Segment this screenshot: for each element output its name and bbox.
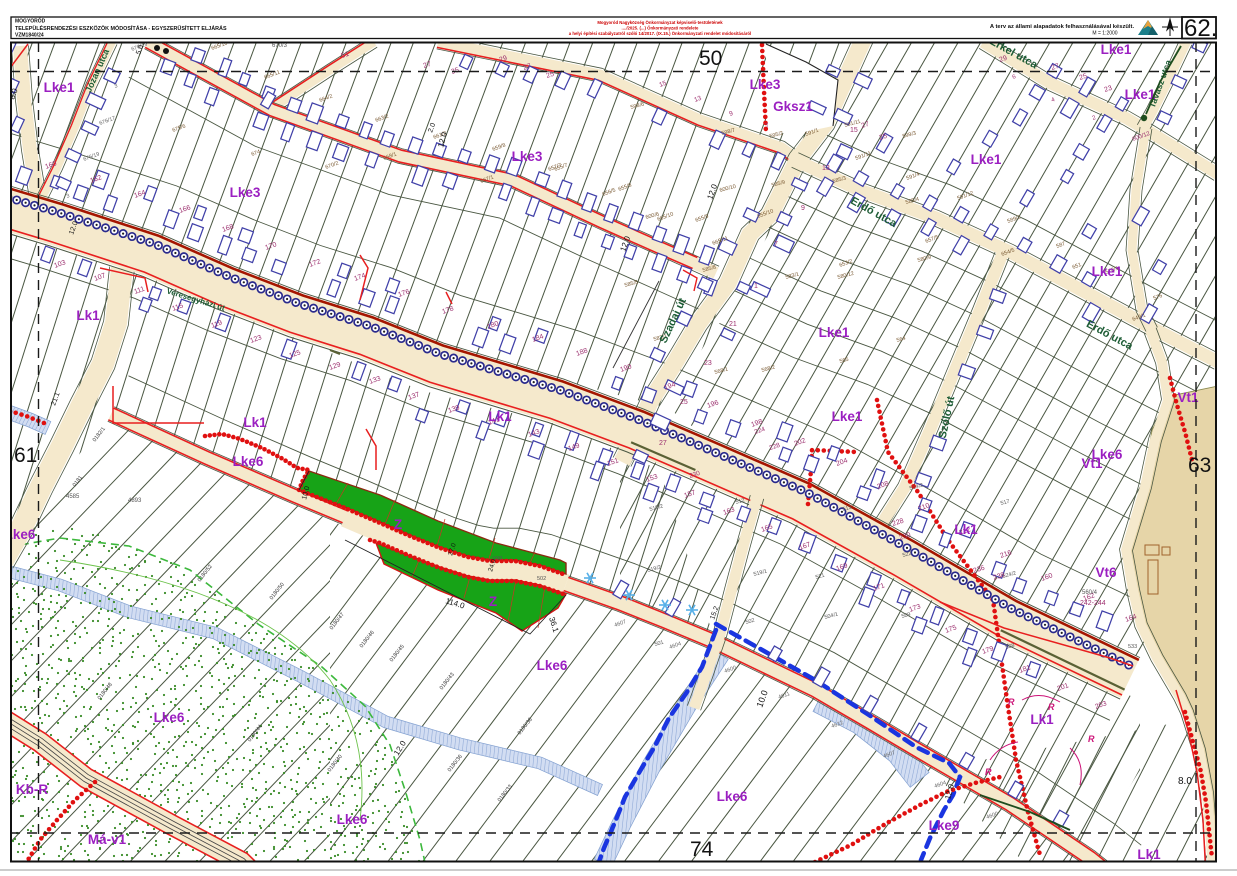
- svg-text:Lke6: Lke6: [537, 658, 568, 673]
- svg-text:61: 61: [14, 444, 37, 467]
- svg-text:..../2025. (...) Önkormányzati: ..../2025. (...) Önkormányzati rendelete: [622, 26, 700, 31]
- svg-text:Lk1: Lk1: [76, 308, 100, 323]
- svg-text:4585: 4585: [66, 494, 80, 500]
- svg-text:Lke1: Lke1: [1092, 264, 1123, 279]
- svg-text:Lke3: Lke3: [230, 185, 261, 200]
- svg-text:Lke1: Lke1: [971, 152, 1002, 167]
- svg-text:Lke1: Lke1: [819, 325, 850, 340]
- svg-text:TELEPÜLÉSRENDEZÉSI ESZKÖZÖK MÓ: TELEPÜLÉSRENDEZÉSI ESZKÖZÖK MÓDOSÍTÁSA -…: [15, 24, 227, 32]
- svg-text:27: 27: [659, 440, 667, 447]
- svg-text:9: 9: [801, 205, 805, 212]
- svg-text:Vt6: Vt6: [1095, 565, 1117, 580]
- svg-text:4893: 4893: [128, 498, 142, 504]
- svg-text:63: 63: [1188, 454, 1211, 477]
- svg-text:7: 7: [774, 241, 778, 248]
- svg-text:Mogyoród Nagyközség Önkormányz: Mogyoród Nagyközség Önkormányzat képvise…: [597, 20, 723, 25]
- svg-text:Lk1: Lk1: [243, 415, 267, 430]
- svg-text:15: 15: [850, 127, 858, 134]
- svg-text:25: 25: [680, 399, 688, 406]
- svg-text:A terv az állami alapadatok fe: A terv az állami alapadatok felhasználás…: [990, 24, 1135, 30]
- svg-text:R: R: [1008, 697, 1015, 707]
- svg-text:a helyi építési szabályzatról: a helyi építési szabályzatról szóló 14/2…: [569, 31, 751, 36]
- svg-text:Lk1: Lk1: [1030, 712, 1054, 727]
- svg-text:MOGYORÓD: MOGYORÓD: [15, 17, 46, 25]
- svg-text:1: 1: [754, 283, 758, 290]
- svg-text:533: 533: [1128, 644, 1137, 650]
- svg-text:242-244: 242-244: [1080, 600, 1106, 607]
- svg-text:Lke1: Lke1: [44, 80, 75, 95]
- svg-text:Lke6: Lke6: [1092, 447, 1123, 462]
- svg-text:74: 74: [690, 838, 714, 861]
- svg-text:Z: Z: [489, 594, 497, 609]
- svg-text:23: 23: [704, 360, 712, 367]
- svg-text:8.0: 8.0: [1178, 776, 1192, 787]
- svg-text:13: 13: [822, 165, 830, 172]
- svg-text:R: R: [985, 767, 992, 777]
- svg-text:670/3: 670/3: [272, 43, 288, 49]
- svg-text:Lke6: Lke6: [717, 789, 748, 804]
- svg-text:Lke1: Lke1: [1125, 87, 1156, 102]
- svg-text:Z: Z: [394, 517, 402, 532]
- svg-text:Lke6: Lke6: [154, 710, 185, 725]
- svg-text:Kb-R: Kb-R: [16, 782, 48, 797]
- svg-text:Lk1: Lk1: [488, 409, 512, 424]
- svg-text:502: 502: [537, 576, 546, 582]
- svg-text:560/4: 560/4: [1082, 590, 1098, 596]
- svg-text:R: R: [1048, 702, 1055, 712]
- svg-text:21: 21: [729, 321, 737, 328]
- svg-text:62.: 62.: [1184, 15, 1217, 42]
- svg-text:Lke9: Lke9: [929, 818, 960, 833]
- svg-text:Lke6: Lke6: [233, 454, 264, 469]
- svg-text:R: R: [1088, 734, 1095, 744]
- svg-text:50: 50: [699, 47, 722, 70]
- svg-text:Lke1: Lke1: [832, 409, 863, 424]
- svg-text:Lk1: Lk1: [1137, 847, 1161, 862]
- svg-text:Lke3: Lke3: [512, 149, 543, 164]
- svg-text:VZM1840/24: VZM1840/24: [15, 33, 44, 39]
- svg-text:Lke6: Lke6: [337, 812, 368, 827]
- svg-text:Lk1: Lk1: [954, 522, 978, 537]
- svg-text:Má-v1: Má-v1: [88, 832, 127, 847]
- svg-text:Lke3: Lke3: [750, 77, 781, 92]
- svg-text:Gksz1: Gksz1: [773, 99, 813, 114]
- svg-text:M = 1:2000: M = 1:2000: [1092, 31, 1117, 37]
- svg-text:Lke1: Lke1: [1101, 42, 1132, 57]
